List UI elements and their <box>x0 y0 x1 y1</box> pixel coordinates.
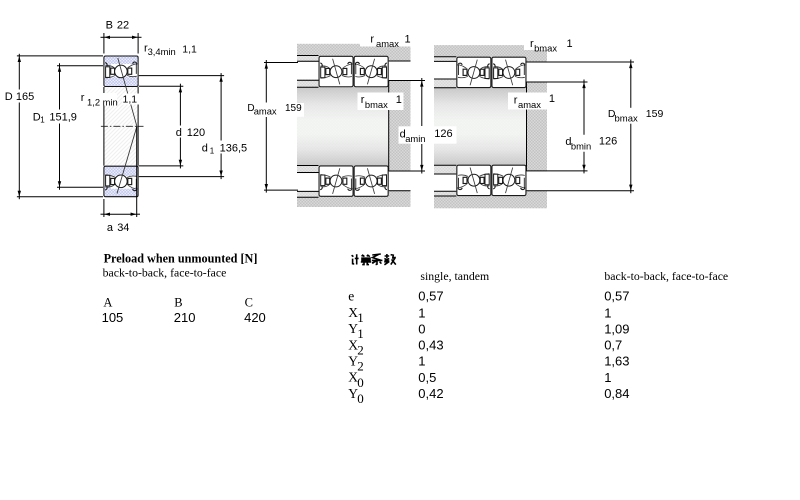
svg-text:1: 1 <box>40 115 45 124</box>
svg-text:D: D <box>5 91 13 103</box>
svg-text:0,84: 0,84 <box>604 386 629 401</box>
svg-text:151,9: 151,9 <box>49 112 77 124</box>
svg-text:1: 1 <box>357 326 364 341</box>
svg-text:C: C <box>245 295 253 309</box>
svg-text:a: a <box>107 222 114 234</box>
svg-text:1,09: 1,09 <box>604 321 629 336</box>
svg-text:bmax: bmax <box>534 43 557 54</box>
svg-text:back-to-back, face-to-face: back-to-back, face-to-face <box>103 266 227 280</box>
svg-text:165: 165 <box>16 91 34 103</box>
svg-text:1: 1 <box>396 94 402 106</box>
svg-text:d: d <box>202 142 208 154</box>
svg-text:1,63: 1,63 <box>604 354 629 369</box>
svg-text:1: 1 <box>357 310 364 325</box>
svg-text:B: B <box>174 295 182 309</box>
svg-text:0: 0 <box>357 391 364 406</box>
svg-text:amax: amax <box>254 106 277 117</box>
svg-text:126: 126 <box>599 136 617 148</box>
svg-text:126: 126 <box>434 128 452 140</box>
svg-text:amax: amax <box>376 38 399 49</box>
svg-text:0,7: 0,7 <box>604 338 622 353</box>
svg-text:1: 1 <box>567 38 573 50</box>
svg-text:1: 1 <box>405 34 411 46</box>
svg-text:0: 0 <box>418 321 425 336</box>
svg-text:amin: amin <box>405 133 425 144</box>
svg-text:2: 2 <box>357 342 364 357</box>
svg-text:0,57: 0,57 <box>604 289 629 304</box>
svg-text:back-to-back, face-to-face: back-to-back, face-to-face <box>604 269 728 283</box>
svg-text:1: 1 <box>210 146 215 155</box>
svg-text:Preload when unmounted [N]: Preload when unmounted [N] <box>104 251 258 265</box>
svg-text:210: 210 <box>174 310 196 325</box>
svg-text:2: 2 <box>357 359 364 374</box>
svg-text:1: 1 <box>418 305 425 320</box>
svg-text:1: 1 <box>604 370 611 385</box>
svg-text:3,4min: 3,4min <box>148 46 176 57</box>
svg-text:r: r <box>81 92 85 104</box>
svg-text:0,43: 0,43 <box>418 338 443 353</box>
svg-text:e: e <box>348 289 354 304</box>
svg-text:420: 420 <box>244 310 266 325</box>
svg-text:single, tandem: single, tandem <box>420 269 489 283</box>
svg-text:1,1: 1,1 <box>182 43 197 55</box>
svg-text:22: 22 <box>117 20 129 32</box>
svg-text:bmax: bmax <box>365 99 388 110</box>
svg-text:105: 105 <box>102 310 124 325</box>
svg-text:1,2 min: 1,2 min <box>87 97 118 108</box>
svg-text:amax: amax <box>518 99 541 110</box>
svg-text:0,5: 0,5 <box>418 370 436 385</box>
svg-text:bmax: bmax <box>615 114 638 125</box>
svg-text:bmin: bmin <box>571 141 591 152</box>
svg-text:d: d <box>176 127 182 139</box>
svg-text:r: r <box>370 34 374 46</box>
svg-text:1: 1 <box>418 354 425 369</box>
svg-text:A: A <box>103 295 112 309</box>
svg-text:0: 0 <box>357 375 364 390</box>
svg-text:159: 159 <box>646 108 664 120</box>
svg-text:1: 1 <box>549 93 555 105</box>
svg-text:34: 34 <box>117 222 129 234</box>
svg-text:136,5: 136,5 <box>220 143 248 155</box>
svg-text:1,1: 1,1 <box>123 94 138 106</box>
svg-text:120: 120 <box>187 127 205 139</box>
svg-text:0,42: 0,42 <box>418 386 443 401</box>
svg-text:159: 159 <box>285 103 302 114</box>
svg-text:B: B <box>106 20 113 32</box>
svg-text:1: 1 <box>604 305 611 320</box>
svg-text:0,57: 0,57 <box>418 289 443 304</box>
